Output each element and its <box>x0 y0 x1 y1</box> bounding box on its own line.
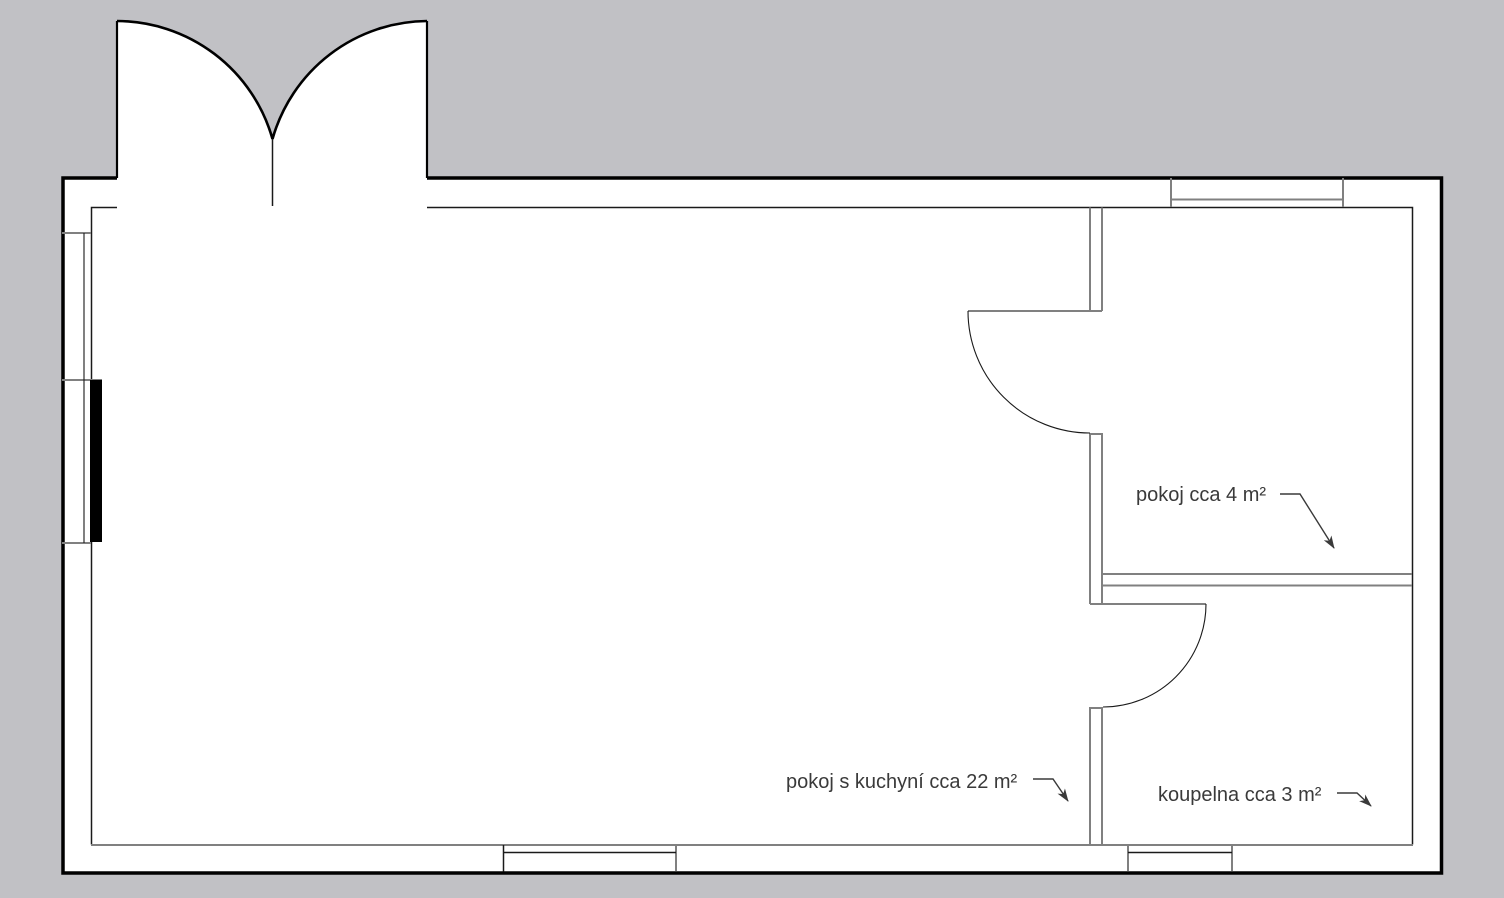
label-room-small: pokoj cca 4 m² <box>1136 484 1266 506</box>
label-room-main: pokoj s kuchyní cca 22 m² <box>786 771 1018 793</box>
floor-plan-image: pokoj cca 4 m² pokoj s kuchyní cca 22 m²… <box>0 0 1504 898</box>
floor-plan-canvas: pokoj cca 4 m² pokoj s kuchyní cca 22 m²… <box>0 0 1504 898</box>
window-left-black-panel <box>90 380 102 542</box>
label-bathroom: koupelna cca 3 m² <box>1158 784 1322 806</box>
apartment-floor-area <box>63 178 1441 873</box>
